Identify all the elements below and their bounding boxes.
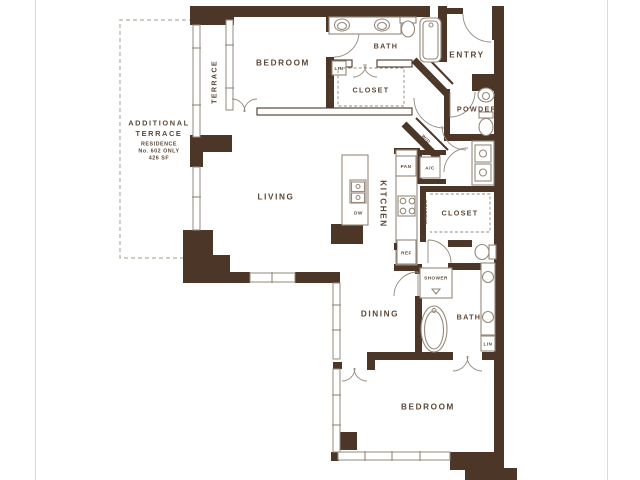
room-label-terrace: TERRACE: [210, 60, 219, 104]
fixture-label-pantry: PAN: [401, 164, 412, 169]
fixture-label-shelves-walkin: SHELVES: [423, 200, 428, 225]
floor-plan-page: TERRACE BEDROOM BATH CLOSET ENTRY CLOSET…: [0, 0, 640, 480]
note-line-sf: 426 SF: [149, 156, 170, 162]
dashed-terrace-boundary: [120, 20, 200, 258]
laundry-fixtures: [472, 141, 494, 185]
fixture-label-refrigerator: REF: [401, 251, 412, 256]
bath-top-fixtures: [329, 17, 441, 62]
room-label-dining: DINING: [361, 310, 399, 319]
room-label-living: LIVING: [258, 193, 295, 202]
fixture-label-shower: SHOWER: [424, 276, 448, 281]
room-label-bedroom-top: BEDROOM: [256, 59, 310, 68]
note-line-residence-no: No. 602 ONLY: [138, 149, 179, 155]
room-label-kitchen: KITCHEN: [379, 180, 388, 228]
note-line-residence: RESIDENCE: [141, 142, 177, 148]
floor-plan-drawing: TERRACE BEDROOM BATH CLOSET ENTRY CLOSET…: [0, 0, 640, 480]
fixture-label-dishwasher: DW: [354, 211, 363, 216]
fixture-label-shelves-top: SHELVES: [329, 78, 334, 103]
fixture-label-ac: A/C: [425, 166, 435, 171]
room-label-closet-top: CLOSET: [353, 86, 390, 95]
fixture-label-linen-top: LIN: [335, 66, 344, 71]
note-line-additional: ADDITIONAL: [128, 119, 190, 128]
additional-terrace-note: ADDITIONAL TERRACE RESIDENCE No. 602 ONL…: [128, 119, 190, 162]
room-label-closet-diagonal: CLOSET: [422, 68, 441, 87]
room-label-bath-master: BATH: [457, 313, 482, 322]
fixture-label-linen-bottom: LIN: [484, 342, 493, 347]
room-label-closet-walkin: CLOSET: [442, 209, 479, 218]
room-label-bedroom-bottom: BEDROOM: [401, 403, 455, 412]
bath-master-fixtures: [420, 245, 496, 353]
toilet-icon: [489, 245, 496, 259]
room-label-entry: ENTRY: [449, 51, 484, 60]
room-label-bath-top: BATH: [374, 42, 399, 51]
note-line-terrace: TERRACE: [136, 129, 183, 138]
room-label-powder: POWDER: [457, 105, 497, 114]
